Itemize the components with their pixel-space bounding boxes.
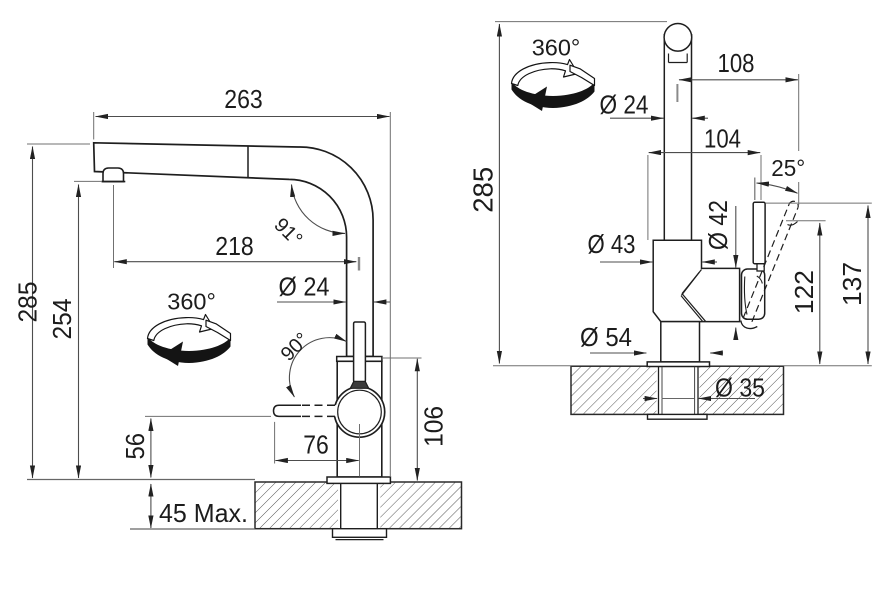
svg-text:Ø 54: Ø 54 (580, 322, 632, 352)
svg-text:108: 108 (718, 48, 755, 78)
svg-text:263: 263 (224, 84, 263, 114)
svg-text:137: 137 (837, 262, 867, 306)
svg-text:104: 104 (704, 124, 741, 154)
svg-text:360°: 360° (167, 289, 216, 315)
svg-text:45 Max.: 45 Max. (159, 498, 248, 528)
svg-text:Ø 24: Ø 24 (279, 272, 330, 302)
svg-text:285: 285 (12, 282, 42, 323)
svg-text:360°: 360° (532, 35, 581, 61)
svg-text:285: 285 (468, 167, 499, 213)
svg-text:76: 76 (303, 430, 329, 460)
svg-text:Ø 43: Ø 43 (588, 229, 636, 259)
svg-text:106: 106 (419, 406, 449, 447)
svg-text:Ø 35: Ø 35 (715, 373, 765, 403)
svg-text:56: 56 (120, 433, 150, 460)
svg-text:254: 254 (47, 299, 77, 340)
svg-text:25°: 25° (771, 155, 805, 181)
svg-text:218: 218 (215, 231, 254, 261)
svg-text:122: 122 (789, 270, 819, 314)
svg-text:Ø 42: Ø 42 (703, 200, 733, 250)
svg-text:Ø 24: Ø 24 (600, 89, 649, 119)
